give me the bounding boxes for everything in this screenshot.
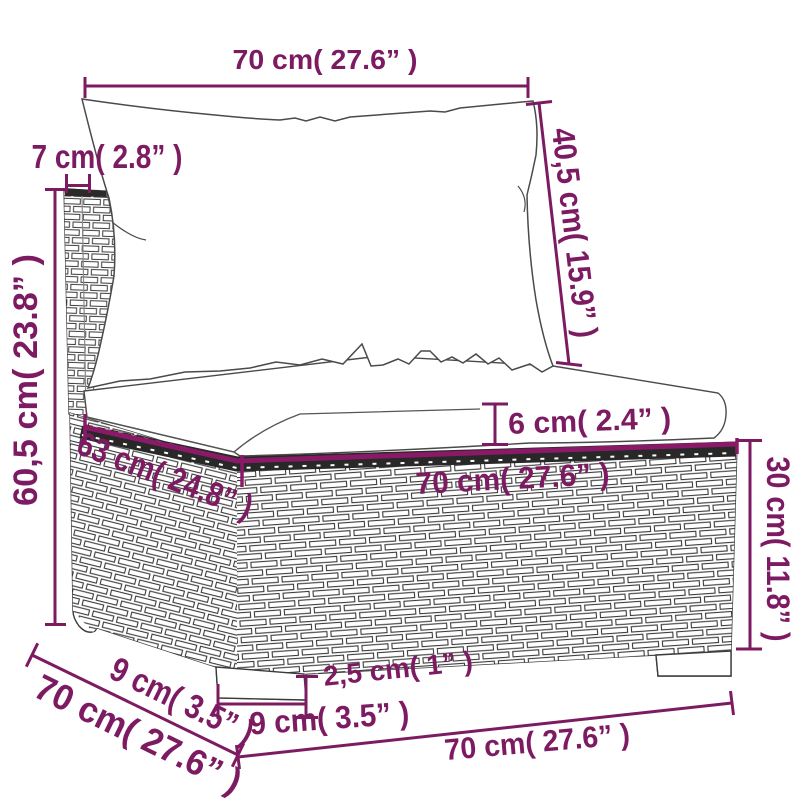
svg-text:30 cm( 11.8” ): 30 cm( 11.8” ) — [760, 457, 796, 642]
svg-text:70 cm( 27.6” ): 70 cm( 27.6” ) — [233, 44, 418, 75]
svg-text:6 cm( 2.4” ): 6 cm( 2.4” ) — [508, 402, 672, 441]
svg-text:7 cm( 2.8” ): 7 cm( 2.8” ) — [32, 138, 183, 175]
svg-text:60,5 cm( 23.8” ): 60,5 cm( 23.8” ) — [7, 254, 45, 506]
